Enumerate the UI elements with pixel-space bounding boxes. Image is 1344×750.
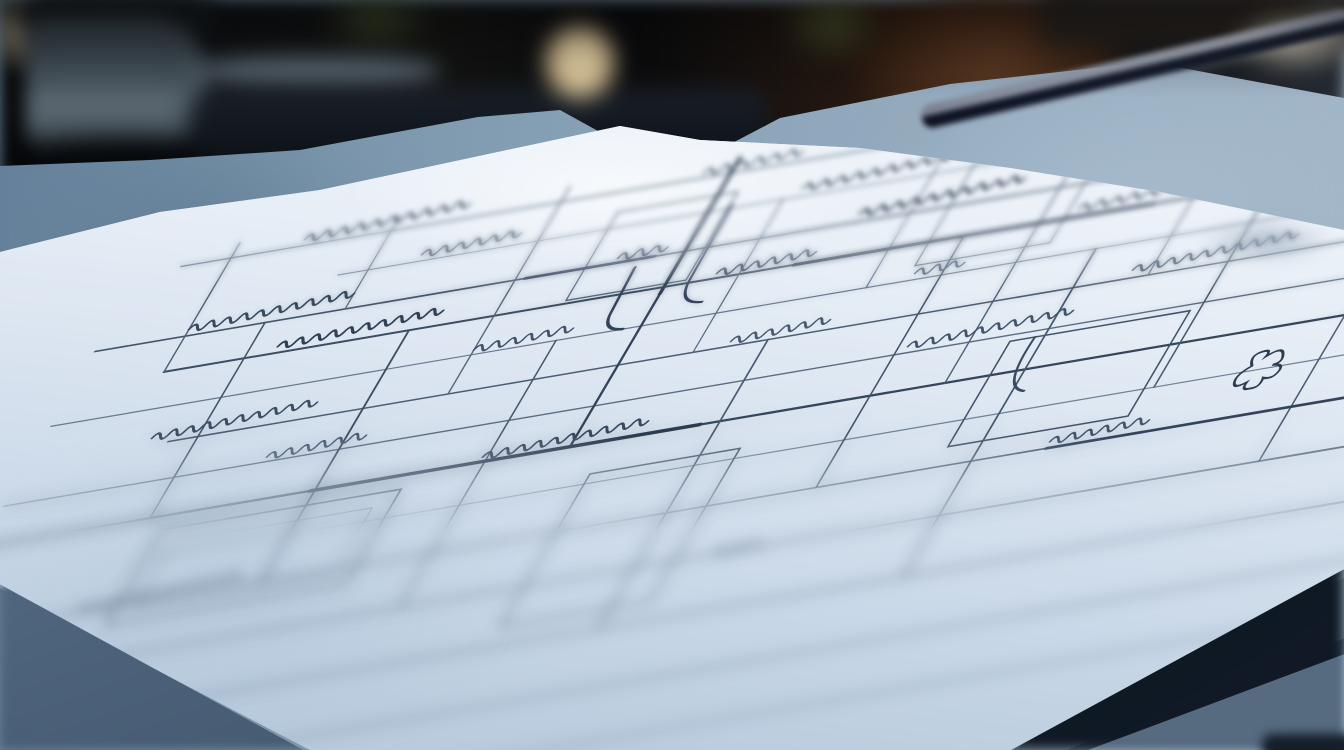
blueprint-drawing — [0, 0, 1344, 750]
photo-scene — [0, 0, 1344, 750]
dark-corner-object — [1262, 734, 1344, 750]
smudge-mark — [1196, 220, 1334, 262]
